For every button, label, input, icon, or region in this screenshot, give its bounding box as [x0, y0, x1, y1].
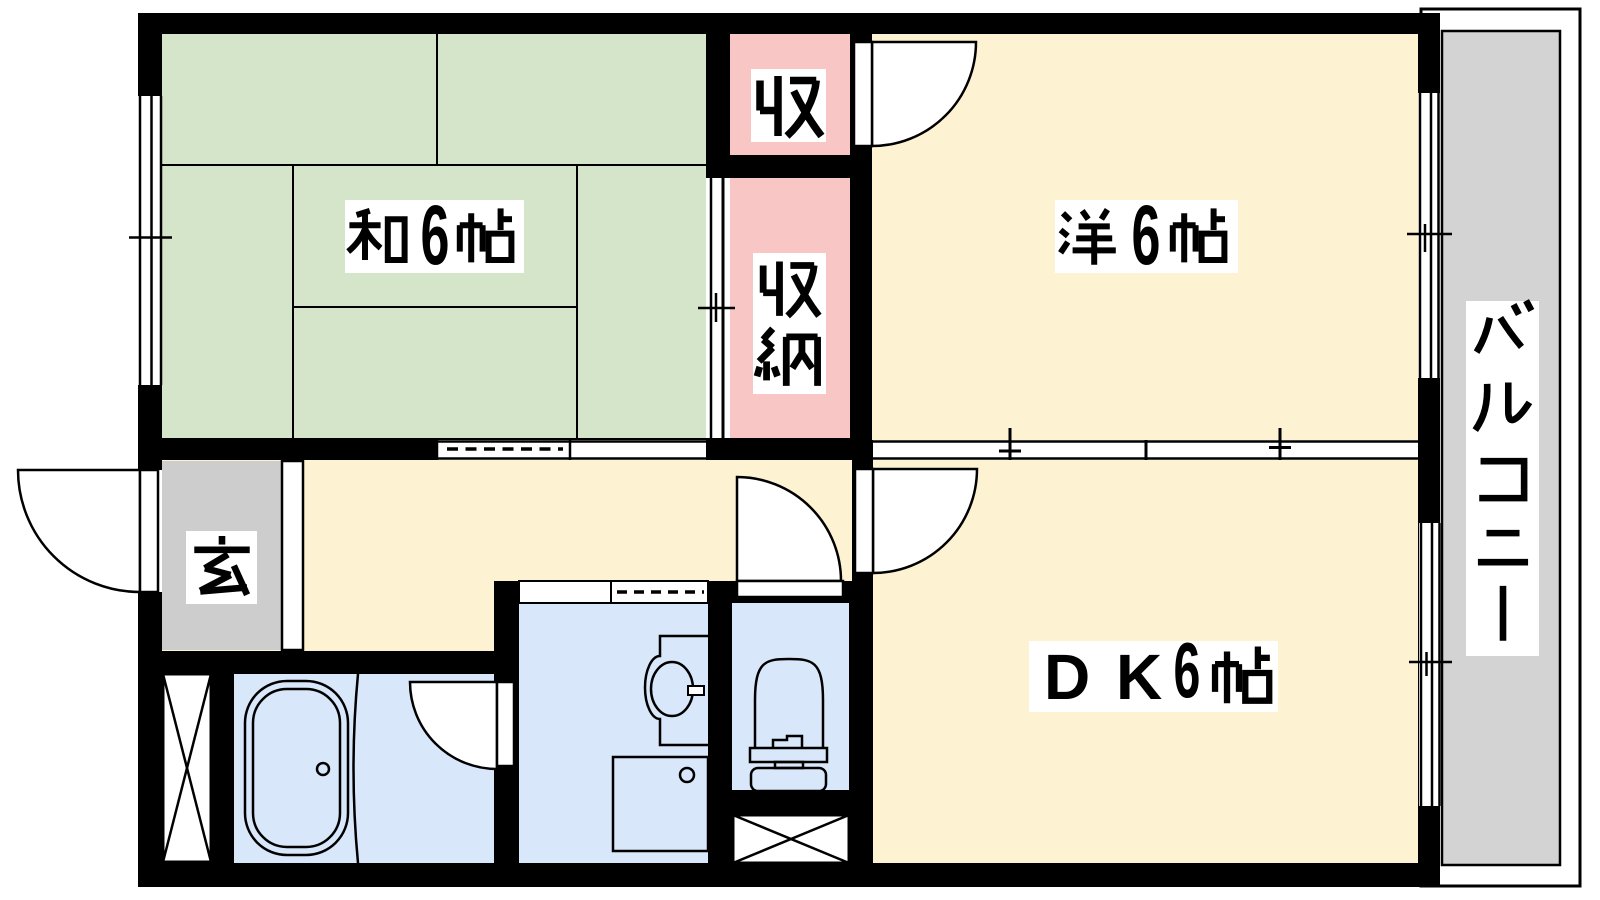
svg-text:D: D	[1044, 641, 1090, 713]
svg-text:6: 6	[1174, 626, 1201, 714]
svg-text:6: 6	[1132, 188, 1161, 282]
svg-text:6: 6	[421, 188, 450, 282]
svg-text:K: K	[1116, 641, 1162, 713]
